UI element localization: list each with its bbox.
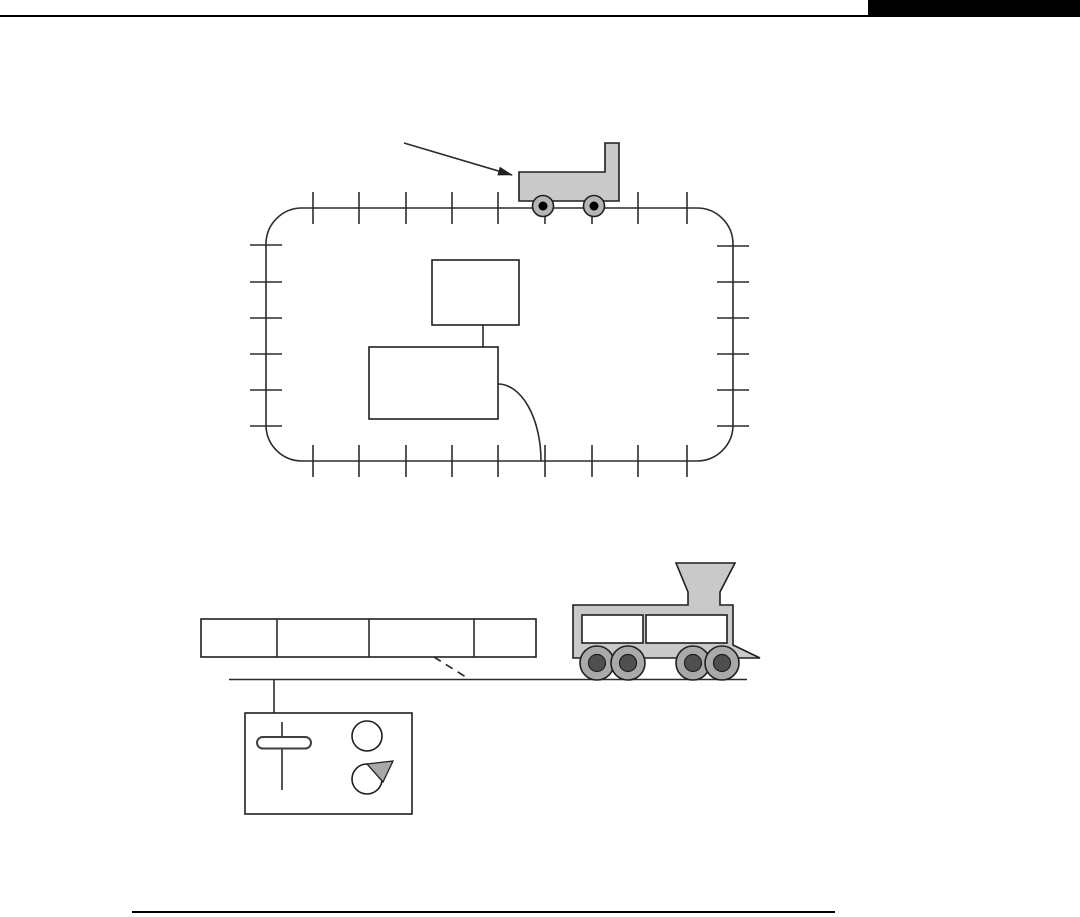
- wagon-wheel-hub: [590, 202, 599, 211]
- figures-canvas: [0, 0, 1080, 917]
- document-page: [0, 0, 1080, 917]
- wagon-body: [519, 143, 619, 201]
- callout-arrow: [404, 143, 512, 175]
- wagon-wheel-hub: [539, 202, 548, 211]
- controller-box: [245, 713, 412, 814]
- figure-train-message: [201, 563, 760, 814]
- small-box: [432, 260, 519, 325]
- wagon: [519, 143, 619, 217]
- throttle-slider-handle: [257, 737, 311, 749]
- locomotive-wheel-hub: [589, 655, 606, 672]
- locomotive-window-right: [646, 615, 727, 643]
- frame-to-track-dashed-line: [434, 657, 469, 679]
- locomotive-wheel-hub: [620, 655, 637, 672]
- track-oval: [266, 208, 733, 461]
- large-box: [369, 347, 498, 419]
- figure-oval-track-layout: [250, 143, 749, 477]
- locomotive-wheel-hub: [714, 655, 731, 672]
- locomotive: [573, 563, 760, 680]
- locomotive-wheel-hub: [685, 655, 702, 672]
- locomotive-window-left: [582, 615, 643, 643]
- message-frame: [201, 619, 536, 657]
- footer-rule: [132, 911, 835, 913]
- knob-upper: [352, 721, 382, 751]
- cable-curve: [498, 384, 541, 461]
